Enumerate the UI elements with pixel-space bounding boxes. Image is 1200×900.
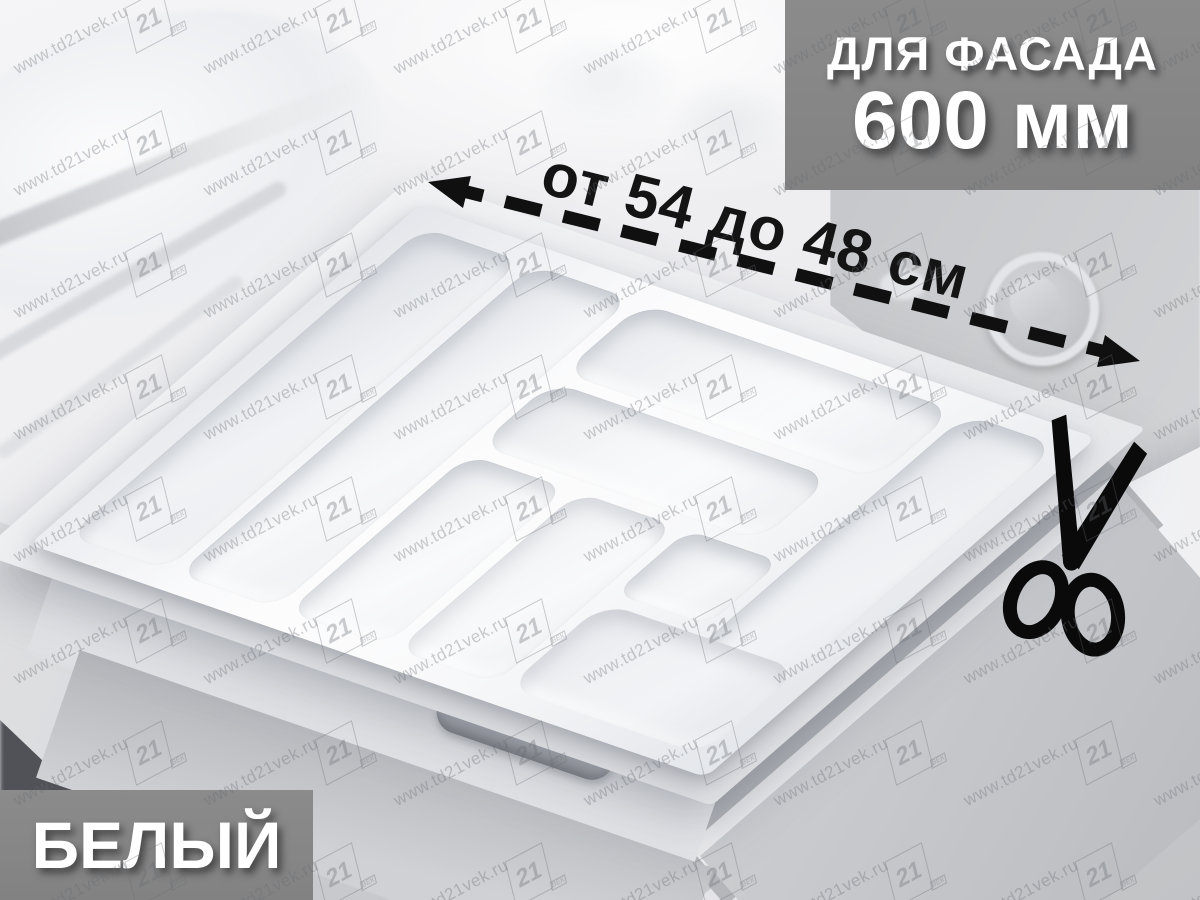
stove-burner-cap [1010, 276, 1060, 326]
background-jar [670, 80, 790, 170]
color-badge: БЕЛЫЙ [0, 790, 313, 900]
scissors-icon [989, 399, 1166, 667]
facade-size-line1: ДЛЯ ФАСАДА [827, 28, 1158, 80]
facade-size-badge: ДЛЯ ФАСАДА 600 мм [785, 0, 1200, 190]
product-photo: от 54 до 48 см ДЛЯ ФАСАДА 600 мм БЕЛЫЙ w… [0, 0, 1200, 900]
color-badge-label: БЕЛЫЙ [32, 807, 282, 883]
background-jar [530, 30, 680, 130]
facade-size-line2: 600 мм [852, 80, 1133, 162]
